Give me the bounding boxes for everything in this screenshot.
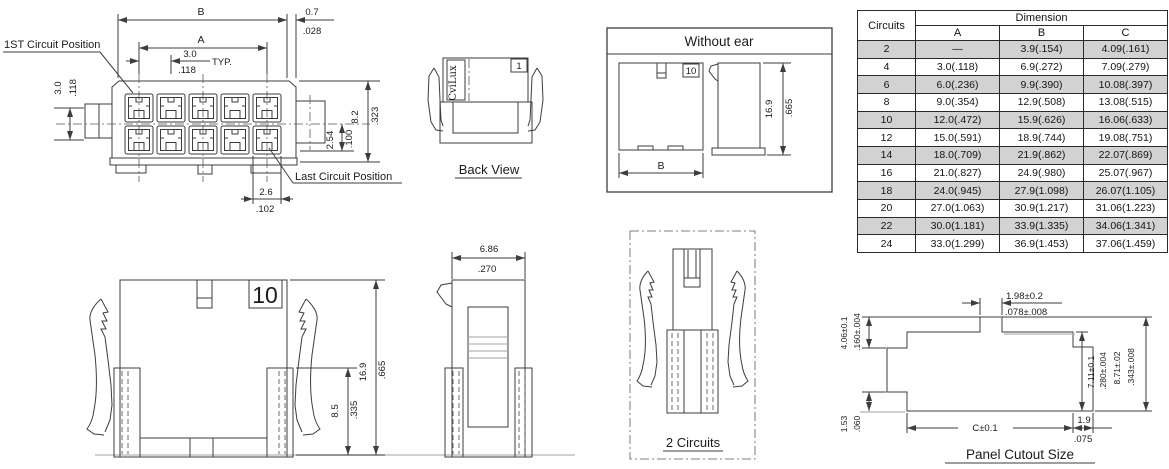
dim-16-9-in: .665 — [377, 361, 388, 380]
table-cell: 7.09(.279) — [1084, 58, 1168, 76]
table-cell: 6.0(.236) — [916, 76, 1000, 94]
table-cell: 8 — [858, 93, 916, 111]
table-row: 1215.0(.591)18.9(.744)19.08(.751) — [858, 129, 1168, 147]
side-view-body — [437, 280, 532, 457]
back-view-body: CviLux 1 — [428, 58, 543, 143]
dim-b-label: B — [657, 160, 664, 172]
front-view-body — [56, 74, 370, 182]
table-cell: 12.9(.508) — [1000, 93, 1084, 111]
dim-7-11-in: .280±.004 — [1098, 352, 1108, 390]
back-view-title: Back View — [459, 162, 520, 177]
table-cell: 37.06(1.459) — [1084, 235, 1168, 253]
table-cell: 16 — [858, 164, 916, 182]
dim-4-06-mm: 4.06±0.1 — [839, 316, 849, 349]
table-cell: 18 — [858, 182, 916, 200]
table-cell: 24 — [858, 235, 916, 253]
dim-c-label: C±0.1 — [972, 423, 997, 434]
table-cell: 4.09(.161) — [1084, 41, 1168, 59]
table-row: 89.0(.354)12.9(.508)13.08(.515) — [858, 93, 1168, 111]
two-circuits-frame — [630, 231, 755, 459]
table-cell: 12.0(.472) — [916, 111, 1000, 129]
table-cell: 9.0(.354) — [916, 93, 1000, 111]
dim-8-5-in: .335 — [349, 401, 360, 420]
dim-8-2-mm: 8.2 — [350, 110, 361, 123]
table-row: 1012.0(.472)15.9(.626)16.06(.633) — [858, 111, 1168, 129]
dim-2-54-mm: 2.54 — [325, 131, 336, 150]
table-row: 2433.0(1.299)36.9(1.453)37.06(1.459) — [858, 235, 1168, 253]
dim-8-5-mm: 8.5 — [330, 404, 341, 417]
without-ear-side: 16.9 .665 — [709, 63, 795, 155]
dim-7-11-mm: 7.11±0.1 — [1086, 356, 1096, 389]
table-cell: 33.9(1.335) — [1000, 217, 1084, 235]
table-cell: 21.0(.827) — [916, 164, 1000, 182]
table-cell: 10 — [858, 111, 916, 129]
col-header-b: B — [1000, 26, 1084, 41]
table-row: 1824.0(.945)27.9(1.098)26.07(1.105) — [858, 182, 1168, 200]
table-row: 66.0(.236)9.9(.390)10.08(.397) — [858, 76, 1168, 94]
table-cell: 9.9(.390) — [1000, 76, 1084, 94]
latch-wings — [637, 271, 748, 387]
table-cell: 14 — [858, 146, 916, 164]
brand-logo: CviLux — [448, 65, 459, 101]
table-cell: 15.0(.591) — [916, 129, 1000, 147]
back-view-drawing: CviLux 1 Back View — [415, 38, 580, 188]
ear-front-body: 10 — [87, 280, 320, 457]
side-view-drawing: 6.86 .270 — [425, 238, 570, 469]
dim-16-9-mm: 16.9 — [358, 363, 369, 382]
without-ear-front: 10 B — [619, 63, 703, 178]
pin10-marker: 10 — [252, 282, 278, 308]
table-cell: 36.9(1.453) — [1000, 235, 1084, 253]
dim-row-pitch-in: .118 — [68, 79, 79, 97]
without-ear-drawing: Without ear 10 B 16.9 .665 — [600, 22, 840, 197]
table-cell: 24.9(.980) — [1000, 164, 1084, 182]
table-cell: 18.0(.709) — [916, 146, 1000, 164]
table-cell: 10.08(.397) — [1084, 76, 1168, 94]
dimension-header: Dimension — [916, 11, 1168, 26]
table-cell: 3.9(.154) — [1000, 41, 1084, 59]
latch-wings — [428, 68, 543, 131]
dim-1-53-in: .060 — [852, 415, 862, 432]
table-cell: 24.0(.945) — [916, 182, 1000, 200]
panel-cutout-shape — [887, 317, 1093, 411]
two-circuits-body — [637, 249, 748, 413]
table-cell: 2 — [858, 41, 916, 59]
table-cell: 25.07(.967) — [1084, 164, 1168, 182]
table-cell: 27.9(1.098) — [1000, 182, 1084, 200]
table-cell: 30.0(1.181) — [916, 217, 1000, 235]
table-cell: 18.9(.744) — [1000, 129, 1084, 147]
without-ear-title: Without ear — [684, 34, 754, 49]
col-header-a: A — [916, 26, 1000, 41]
ear-front-view-drawing: 10 8.5 .335 16.9 .665 — [55, 238, 395, 469]
table-cell: 16.06(.633) — [1084, 111, 1168, 129]
dim-0-7-mm: 0.7 — [305, 7, 318, 18]
table-cell: 13.08(.515) — [1084, 93, 1168, 111]
panel-cutout-dimensions: 1.98±0.2 .078±.008 4.06±0.1 .160±.004 1.… — [839, 291, 1152, 445]
panel-cutout-drawing: 1.98±0.2 .078±.008 4.06±0.1 .160±.004 1.… — [838, 266, 1169, 469]
table-cell: 20 — [858, 199, 916, 217]
panel-cutout-title: Panel Cutout Size — [966, 447, 1074, 462]
dim-8-71-mm: 8.71±.02 — [1112, 351, 1122, 384]
table-row: 2—3.9(.154)4.09(.161) — [858, 41, 1168, 59]
table-cell: 21.9(.862) — [1000, 146, 1084, 164]
pin1-marker: 1 — [516, 61, 521, 72]
dim-2-54-in: .100 — [344, 130, 355, 149]
side-view-dimensions: 6.86 .270 — [452, 244, 525, 279]
last-circuit-label: Last Circuit Position — [295, 171, 392, 183]
dim-2-6-mm: 2.6 — [259, 187, 272, 198]
first-circuit-label: 1ST Circuit Position — [4, 39, 100, 51]
col-header-c: C — [1084, 26, 1168, 41]
table-cell: 31.06(1.223) — [1084, 199, 1168, 217]
table-cell: 12 — [858, 129, 916, 147]
dim-a-label: A — [197, 34, 204, 46]
table-cell: 6 — [858, 76, 916, 94]
table-row: 2027.0(1.063)30.9(1.217)31.06(1.223) — [858, 199, 1168, 217]
table-row: 1418.0(.709)21.9(.862)22.07(.869) — [858, 146, 1168, 164]
dim-8-2-in: .323 — [370, 107, 381, 126]
table-cell: 4 — [858, 58, 916, 76]
dim-0-7-in: .028 — [303, 26, 322, 37]
table-cell: 19.08(.751) — [1084, 129, 1168, 147]
two-circuits-drawing: 2 Circuits — [612, 222, 777, 469]
table-cell: 33.0(1.299) — [916, 235, 1000, 253]
ear-front-dimensions: 8.5 .335 16.9 .665 — [290, 280, 388, 455]
table-cell: — — [916, 41, 1000, 59]
table-cell: 27.0(1.063) — [916, 199, 1000, 217]
dim-8-71-in: .343±.008 — [1126, 348, 1136, 386]
table-cell: 3.0(.118) — [916, 58, 1000, 76]
dim-1-98-mm: 1.98±0.2 — [1006, 291, 1043, 302]
front-view-drawing: B 0.7 .028 A 3.0 .118 TYP. 3.0 .118 — [0, 0, 415, 235]
table-row: 1621.0(.827)24.9(.980)25.07(.967) — [858, 164, 1168, 182]
table-cell: 15.9(.626) — [1000, 111, 1084, 129]
dim-pitch-mm: 3.0 — [183, 49, 196, 60]
dim-1-53-mm: 1.53 — [839, 415, 849, 432]
dimension-table: Circuits Dimension A B C 2—3.9(.154)4.09… — [857, 10, 1168, 253]
table-cell: 22.07(.869) — [1084, 146, 1168, 164]
dim-16-9-in: .665 — [784, 99, 795, 118]
dim-6-86-mm: 6.86 — [480, 244, 499, 255]
table-row: 2230.0(1.181)33.9(1.335)34.06(1.341) — [858, 217, 1168, 235]
connector-datasheet-drawing: B 0.7 .028 A 3.0 .118 TYP. 3.0 .118 — [0, 0, 1169, 469]
dim-4-06-in: .160±.004 — [852, 313, 862, 351]
table-cell: 22 — [858, 217, 916, 235]
table-cell: 34.06(1.341) — [1084, 217, 1168, 235]
table-cell: 26.07(1.105) — [1084, 182, 1168, 200]
dim-b-label: B — [197, 6, 204, 18]
two-circuits-title: 2 Circuits — [666, 435, 721, 450]
dim-1-9-in: .075 — [1074, 434, 1093, 445]
dimension-table-body: 2—3.9(.154)4.09(.161)43.0(.118)6.9(.272)… — [858, 41, 1168, 253]
circuits-header: Circuits — [858, 11, 916, 41]
dim-6-86-in: .270 — [478, 264, 497, 275]
dim-row-pitch-mm: 3.0 — [53, 81, 64, 94]
pin10-marker: 10 — [686, 66, 697, 77]
dim-typ-label: TYP. — [212, 57, 232, 68]
dim-1-98-in: .078±.008 — [1005, 307, 1047, 318]
dim-16-9-mm: 16.9 — [764, 100, 775, 119]
dim-pitch-in: .118 — [178, 65, 196, 76]
without-ear-frame — [607, 28, 832, 192]
dim-1-9-mm: 1.9 — [1077, 415, 1090, 426]
table-cell: 6.9(.272) — [1000, 58, 1084, 76]
table-row: 43.0(.118)6.9(.272)7.09(.279) — [858, 58, 1168, 76]
dim-2-6-in: .102 — [256, 204, 275, 215]
table-cell: 30.9(1.217) — [1000, 199, 1084, 217]
